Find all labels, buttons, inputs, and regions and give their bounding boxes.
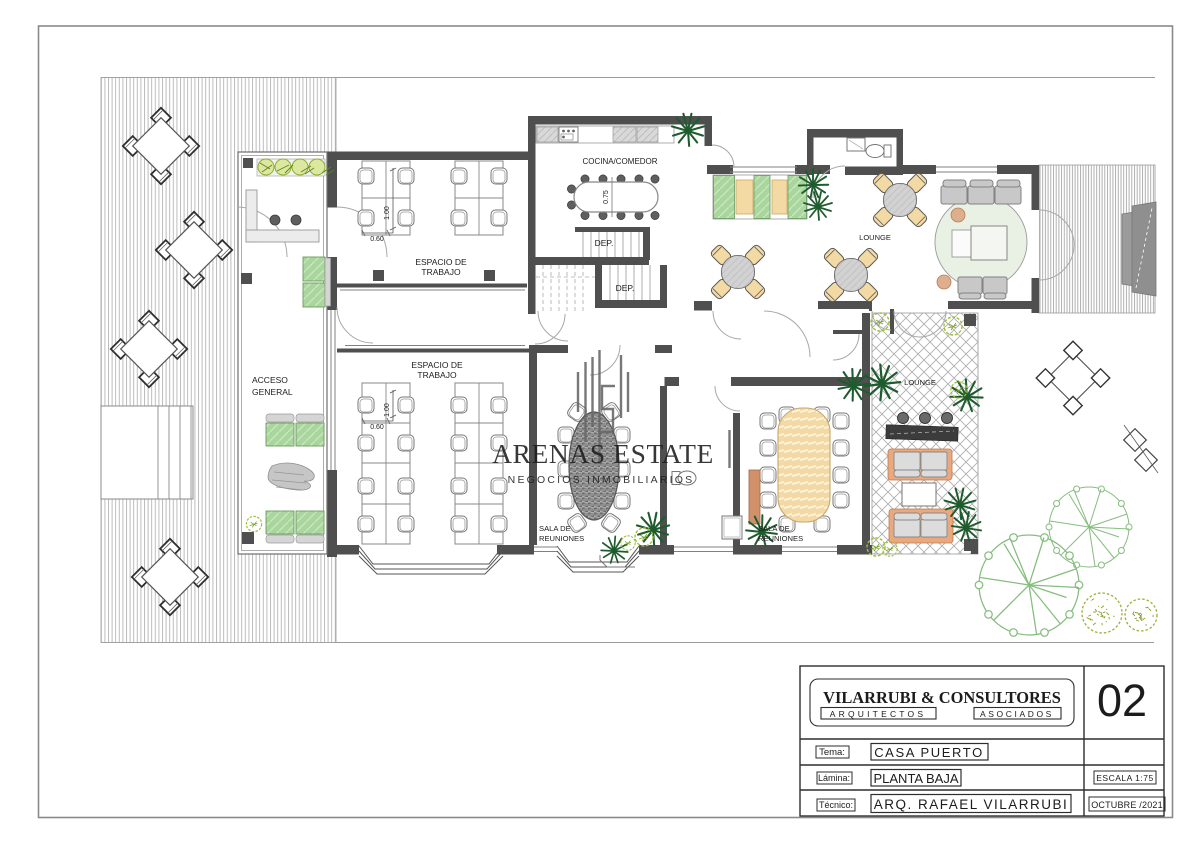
svg-text:LOUNGE: LOUNGE — [904, 378, 936, 387]
svg-text:0.75: 0.75 — [603, 190, 610, 204]
svg-text:ESCALA 1:75: ESCALA 1:75 — [1096, 773, 1153, 783]
svg-text:DEP.: DEP. — [616, 283, 635, 293]
svg-text:COCINA/COMEDOR: COCINA/COMEDOR — [582, 157, 657, 166]
svg-text:TRABAJO: TRABAJO — [417, 370, 457, 380]
svg-text:ASOCIADOS: ASOCIADOS — [980, 709, 1054, 719]
svg-text:1.00: 1.00 — [384, 206, 391, 220]
svg-text:DEP.: DEP. — [595, 238, 614, 248]
svg-text:Lámina:: Lámina: — [818, 773, 850, 783]
svg-text:Técnico:: Técnico: — [819, 800, 853, 810]
svg-text:ESPACIO DE: ESPACIO DE — [411, 360, 463, 370]
svg-text:SALA DE: SALA DE — [758, 524, 790, 533]
svg-text:SALA DE: SALA DE — [539, 524, 571, 533]
svg-text:ARENAS ESTATE: ARENAS ESTATE — [492, 438, 714, 469]
svg-text:0.60: 0.60 — [370, 424, 384, 431]
svg-text:Tema:: Tema: — [819, 747, 845, 758]
svg-text:REUNIONES: REUNIONES — [758, 534, 803, 543]
svg-text:LOUNGE: LOUNGE — [859, 233, 891, 242]
svg-text:ARQUITECTOS: ARQUITECTOS — [830, 709, 926, 719]
svg-text:PLANTA BAJA: PLANTA BAJA — [873, 771, 958, 786]
svg-text:TRABAJO: TRABAJO — [421, 267, 461, 277]
svg-text:1.00: 1.00 — [384, 403, 391, 417]
svg-text:ACCESO: ACCESO — [252, 375, 288, 385]
svg-text:VILARRUBI & CONSULTORES: VILARRUBI & CONSULTORES — [823, 688, 1061, 707]
svg-text:GENERAL: GENERAL — [252, 387, 293, 397]
svg-text:02: 02 — [1097, 675, 1147, 726]
svg-text:ESPACIO DE: ESPACIO DE — [415, 257, 467, 267]
svg-text:OCTUBRE /2021: OCTUBRE /2021 — [1091, 800, 1163, 810]
svg-text:0.60: 0.60 — [370, 236, 384, 243]
svg-text:REUNIONES: REUNIONES — [539, 534, 584, 543]
svg-text:CASA PUERTO: CASA PUERTO — [874, 745, 984, 760]
svg-text:NEGOCIOS INMOBILIARIOS: NEGOCIOS INMOBILIARIOS — [508, 474, 695, 486]
svg-text:ARQ. RAFAEL VILARRUBI: ARQ. RAFAEL VILARRUBI — [874, 797, 1069, 812]
